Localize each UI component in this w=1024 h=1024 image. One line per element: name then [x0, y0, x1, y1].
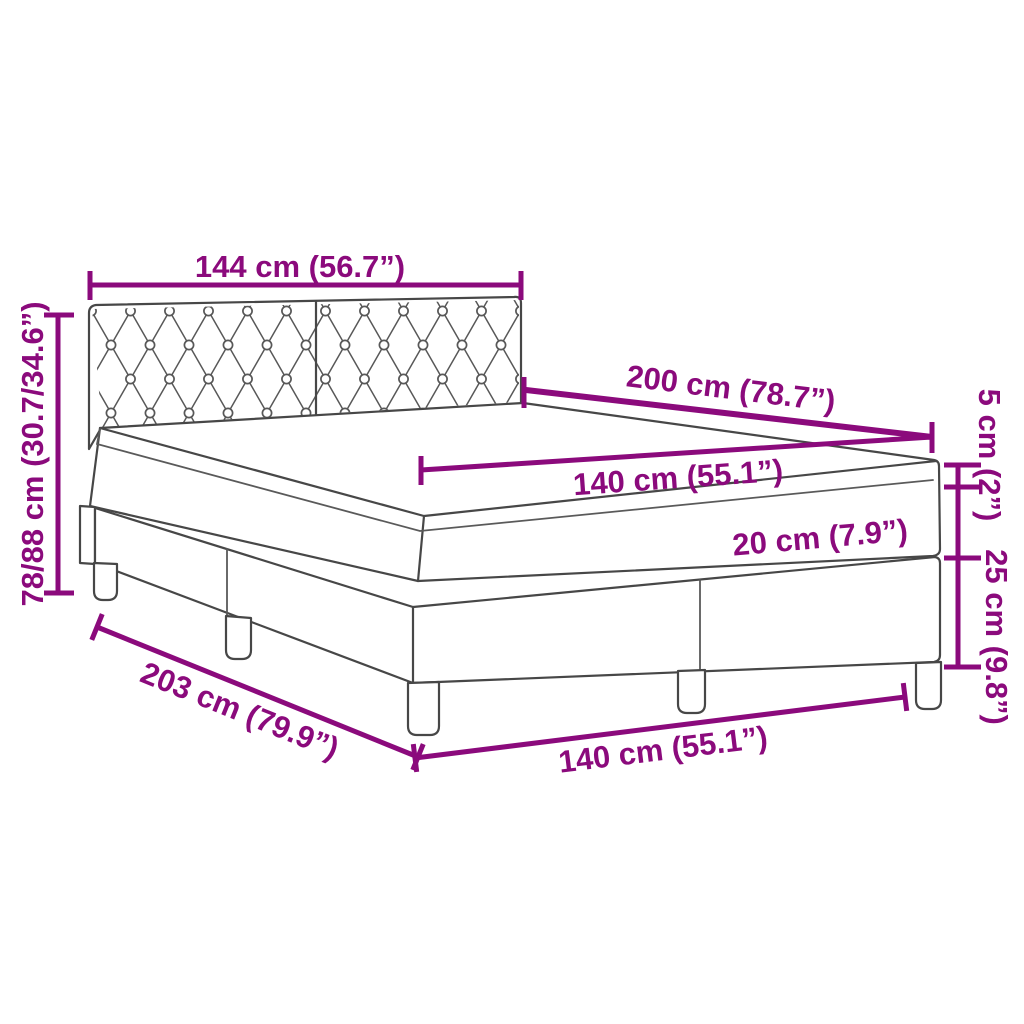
base-head-post — [80, 506, 95, 564]
dimension-diagram: 144 cm (56.7”) 78/88 cm (30.7/34.6”) 200… — [0, 0, 1024, 1024]
dim-bed-width: 140 cm (55.1”) — [413, 683, 906, 780]
dim-label-headboard-height: 78/88 cm (30.7/34.6”) — [15, 301, 50, 606]
dim-label-headboard-width: 144 cm (56.7”) — [195, 249, 405, 284]
bed-diagram-canvas: 144 cm (56.7”) 78/88 cm (30.7/34.6”) 200… — [0, 0, 1024, 1024]
dim-headboard-width: 144 cm (56.7”) — [90, 249, 521, 300]
dim-headboard-height: 78/88 cm (30.7/34.6”) — [15, 301, 74, 606]
dim-right-heights: 5 cm (2”) 25 cm (9.8”) — [944, 389, 1014, 725]
leg-front-corner — [408, 682, 439, 735]
dim-label-total-length: 203 cm (79.9”) — [136, 655, 344, 766]
dim-label-bed-length: 200 cm (78.7”) — [624, 358, 837, 418]
leg-head-left — [94, 563, 117, 600]
bed-illustration — [80, 297, 941, 735]
dim-label-topper-thickness: 5 cm (2”) — [972, 389, 1007, 522]
dim-label-base-height: 25 cm (9.8”) — [979, 549, 1014, 725]
leg-foot-middle — [678, 670, 705, 713]
leg-side-middle — [226, 616, 251, 659]
leg-foot-right — [916, 662, 941, 709]
